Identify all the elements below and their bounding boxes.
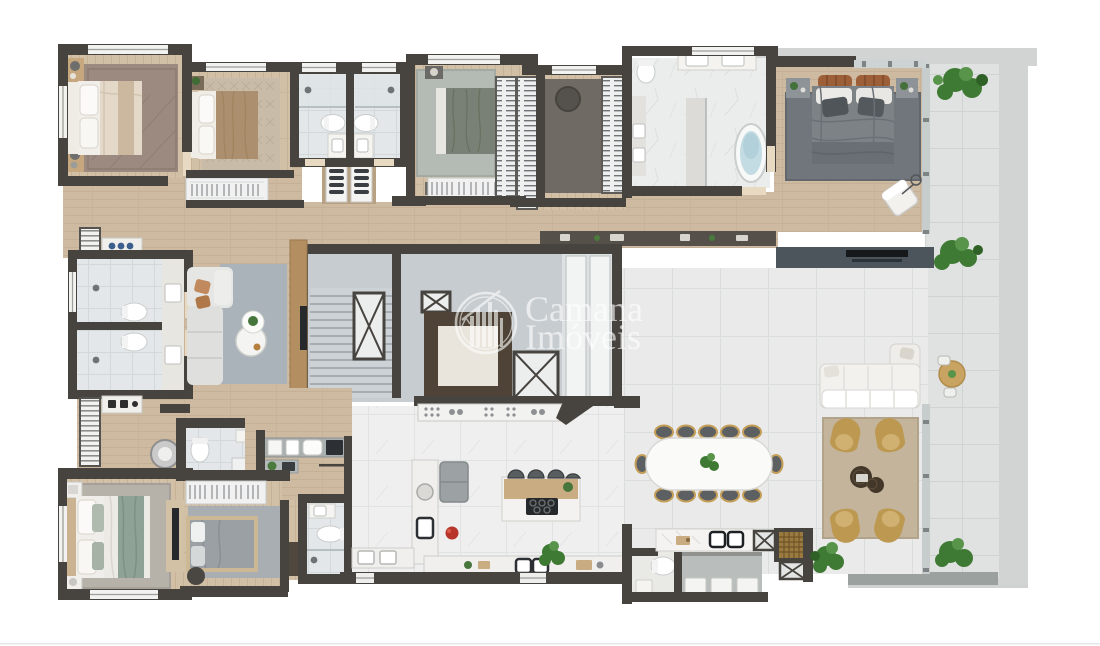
svg-text:Imóveis: Imóveis [525, 317, 641, 357]
